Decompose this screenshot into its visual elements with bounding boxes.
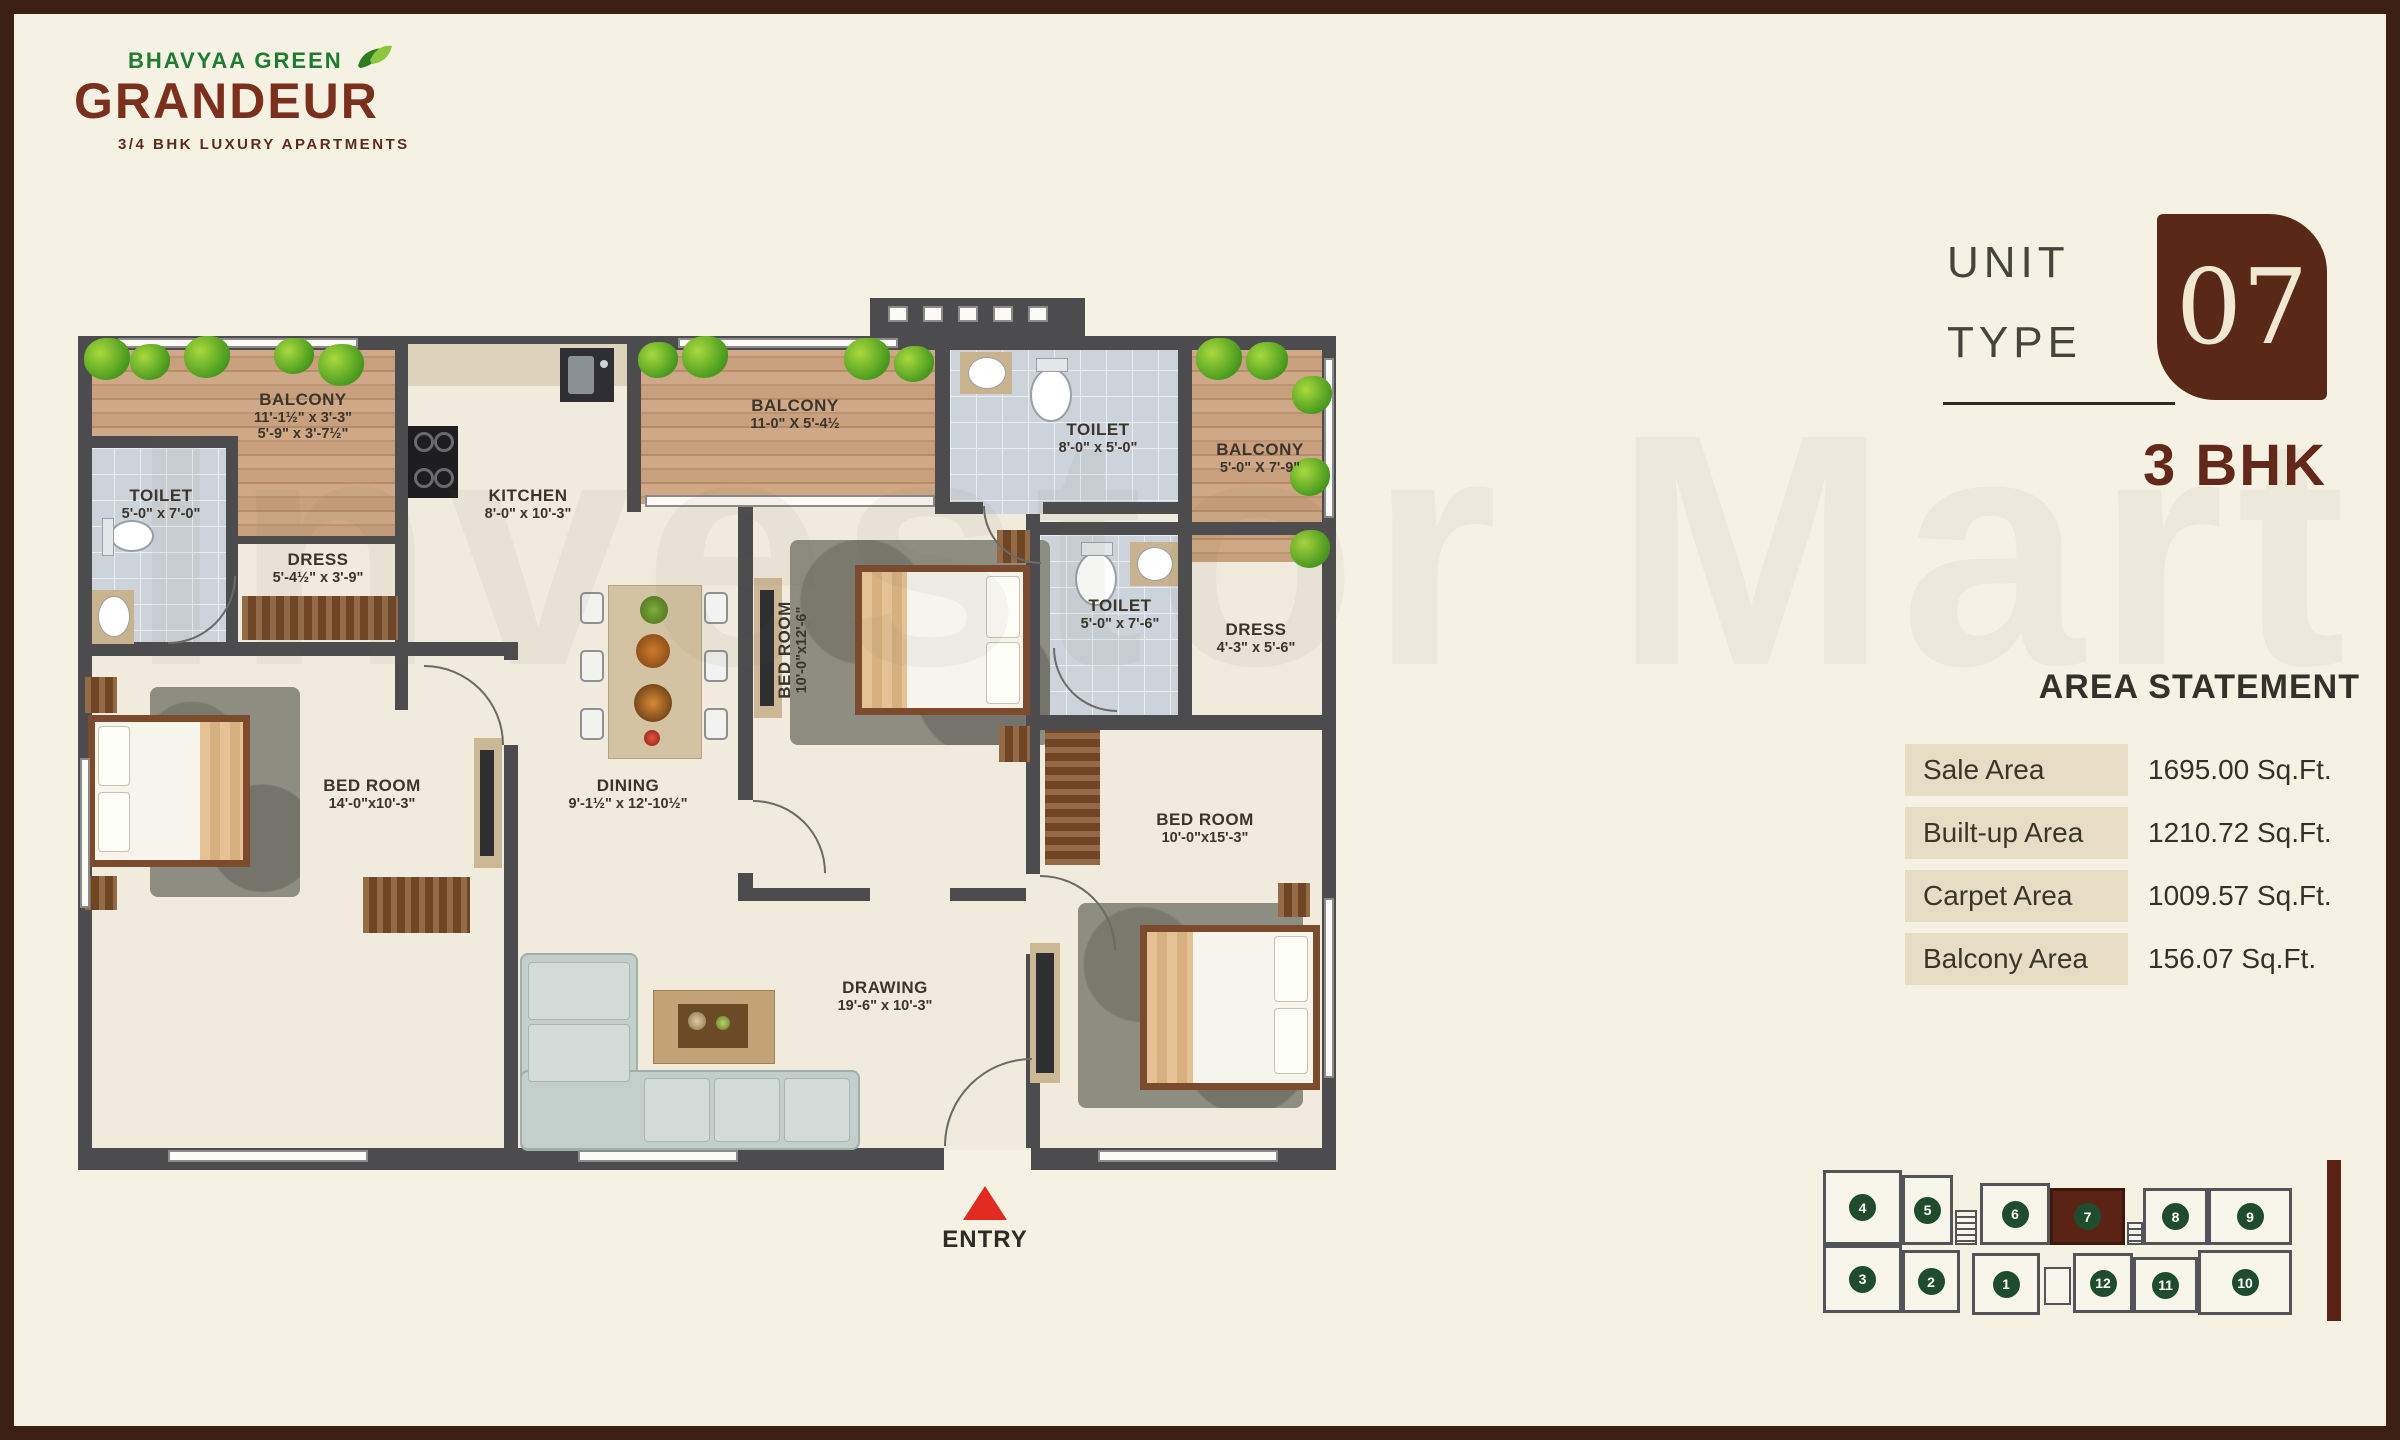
key-plan: 4 5 6 7 8 9 3 2 1 12 11 10	[1823, 1168, 2353, 1338]
wall	[950, 888, 1026, 901]
area-row-label: Sale Area	[1905, 744, 2128, 796]
wall	[236, 536, 400, 544]
wall	[935, 344, 950, 514]
logo-brand-text: BHAVYAA GREEN	[128, 48, 343, 74]
bed-pillow	[98, 726, 130, 786]
basin-icon	[92, 590, 134, 644]
tray-item	[688, 1012, 706, 1030]
unit-underline	[1943, 402, 2175, 405]
type-word: TYPE	[1947, 318, 2082, 368]
food-plate	[634, 684, 672, 722]
room-label-dining: DINING 9'-1½" x 12'-10½"	[538, 776, 718, 812]
sofa-cushion	[528, 1024, 630, 1082]
bed-pillow	[1274, 936, 1308, 1002]
food-plate	[640, 596, 668, 624]
keyplan-unit-6: 6	[1980, 1183, 2050, 1245]
area-row-label: Balcony Area	[1905, 933, 2128, 985]
room-label-toilet-3: TOILET 5'-0" x 7'-6"	[1050, 596, 1190, 632]
wall	[738, 873, 753, 901]
wall	[92, 642, 518, 656]
keyplan-unit-10: 10	[2198, 1250, 2292, 1315]
room-label-dress-1: DRESS 5'-4½" x 3'-9"	[238, 550, 398, 586]
room-label-bedroom-mid: BED ROOM 10'-0"x12'-6"	[723, 580, 863, 720]
dresser-cabinet	[242, 596, 398, 640]
logo: BHAVYAA GREEN GRANDEUR 3/4 BHK LUXURY AP…	[70, 40, 490, 170]
keyplan-unit-12: 12	[2073, 1253, 2133, 1313]
lobby-box	[2044, 1267, 2071, 1305]
area-row-value: 1210.72 Sq.Ft.	[2148, 807, 2358, 859]
unit-word: UNIT	[1947, 238, 2070, 288]
basin-icon	[960, 352, 1012, 394]
room-label-bedroom-right: BED ROOM 10'-0"x15'-3"	[1105, 810, 1305, 846]
window	[168, 1150, 368, 1162]
bedside-table	[85, 677, 117, 713]
keyplan-unit-9: 9	[2208, 1188, 2292, 1245]
logo-tagline: 3/4 BHK LUXURY APARTMENTS	[118, 136, 410, 153]
duct-vent	[958, 306, 978, 322]
logo-name-text: GRANDEUR	[74, 72, 379, 130]
stove-burner	[434, 432, 454, 452]
unit-number-badge: 07	[2157, 214, 2327, 400]
keyplan-accent-bar	[2327, 1160, 2341, 1321]
bed-pillow	[986, 576, 1020, 638]
duct-vent	[993, 306, 1013, 322]
wc-tank	[1036, 358, 1068, 372]
bed-blanket	[200, 722, 243, 860]
wall	[1026, 715, 1322, 730]
basin-icon	[1130, 542, 1178, 586]
keyplan-unit-1: 1	[1972, 1253, 2040, 1315]
area-statement: AREA STATEMENT Sale Area 1695.00 Sq.Ft. …	[1900, 660, 2360, 1000]
wc-icon	[1030, 368, 1072, 422]
keyplan-unit-4: 4	[1823, 1170, 1902, 1245]
entry-arrow-icon	[963, 1186, 1007, 1220]
wall	[504, 642, 518, 660]
sofa-cushion	[644, 1078, 710, 1142]
keyplan-unit-5: 5	[1902, 1175, 1953, 1245]
dining-chair	[580, 592, 604, 624]
keyplan-unit-8: 8	[2143, 1188, 2208, 1245]
stove-burner	[434, 468, 454, 488]
bedside-table	[1278, 883, 1310, 917]
coffee-table-tray	[678, 1004, 748, 1048]
area-row-value: 156.07 Sq.Ft.	[2148, 933, 2358, 985]
room-label-toilet-1: TOILET 5'-0" x 7'-0"	[96, 486, 226, 522]
wall	[950, 502, 983, 514]
tv-icon	[1036, 953, 1054, 1073]
stove-burner	[414, 468, 434, 488]
balcony-slider-window	[645, 495, 935, 507]
bed-pillow	[98, 792, 130, 852]
sofa-cushion	[714, 1078, 780, 1142]
room-label-bedroom-left: BED ROOM 14'-0"x10'-3"	[272, 776, 472, 812]
area-row-value: 1695.00 Sq.Ft.	[2148, 744, 2358, 796]
room-label-balcony-2: BALCONY 11-0" X 5'-4½	[695, 396, 895, 432]
unit-type-block: UNIT TYPE 07 3 BHK	[1940, 200, 2360, 520]
area-statement-title: AREA STATEMENT	[1900, 668, 2360, 707]
wc-icon	[110, 520, 154, 552]
wardrobe	[1045, 730, 1100, 865]
food-plate	[644, 730, 660, 746]
tv-icon	[480, 750, 494, 856]
keyplan-unit-2: 2	[1902, 1250, 1960, 1313]
room-label-drawing: DRAWING 19'-6" x 10'-3"	[785, 978, 985, 1014]
duct-vent	[888, 306, 908, 322]
wc-tank	[1081, 542, 1113, 556]
brochure-page: { "page": {"bg": "#f5f2e4", "frame_color…	[0, 0, 2400, 1440]
dining-chair	[580, 708, 604, 740]
keyplan-unit-7-highlighted: 7	[2050, 1188, 2125, 1245]
bed-blanket	[1147, 932, 1193, 1083]
duct-vent	[923, 306, 943, 322]
bed-blanket	[862, 572, 907, 708]
tray-item	[716, 1016, 730, 1030]
stairs-icon	[2127, 1222, 2143, 1245]
keyplan-unit-3: 3	[1823, 1245, 1902, 1313]
bed-pillow	[1274, 1008, 1308, 1074]
floor-plan: BALCONY 11'-1½" x 3'-3" 5'-9" x 3'-7½" T…	[78, 298, 1336, 1258]
sink-bowl	[568, 356, 594, 394]
food-plate	[636, 634, 670, 668]
wall	[1043, 502, 1180, 514]
area-row-label: Carpet Area	[1905, 870, 2128, 922]
unit-number: 07	[2176, 246, 2308, 368]
sofa-cushion	[528, 962, 630, 1020]
bed-pillow	[986, 642, 1020, 704]
window	[578, 1150, 738, 1162]
bhk-label: 3 BHK	[1940, 432, 2327, 499]
wall	[1026, 522, 1322, 535]
room-label-toilet-2: TOILET 8'-0" x 5'-0"	[1008, 420, 1188, 456]
area-row-label: Built-up Area	[1905, 807, 2128, 859]
entry-label: ENTRY	[940, 1226, 1030, 1254]
bedside-table	[999, 726, 1030, 762]
wc-tank	[102, 518, 114, 556]
window	[1098, 1150, 1278, 1162]
sofa-cushion	[784, 1078, 850, 1142]
window	[80, 758, 90, 908]
sink-tap	[600, 360, 608, 368]
stairs-icon	[1955, 1210, 1977, 1245]
area-row-value: 1009.57 Sq.Ft.	[2148, 870, 2358, 922]
room-label-dress-2: DRESS 4'-3" x 5'-6"	[1186, 620, 1326, 656]
wall	[627, 344, 641, 512]
keyplan-unit-11: 11	[2133, 1257, 2198, 1313]
room-label-balcony-1: BALCONY 11'-1½" x 3'-3" 5'-9" x 3'-7½"	[183, 390, 423, 443]
dining-chair	[580, 650, 604, 682]
room-label-kitchen: KITCHEN 8'-0" x 10'-3"	[433, 486, 623, 522]
wall	[504, 745, 518, 1148]
wall	[753, 888, 870, 901]
wardrobe	[363, 877, 470, 933]
room-label-balcony-3: BALCONY 5'-0" X 7'-9"	[1190, 440, 1330, 476]
window	[1324, 898, 1334, 1078]
duct-vent	[1028, 306, 1048, 322]
